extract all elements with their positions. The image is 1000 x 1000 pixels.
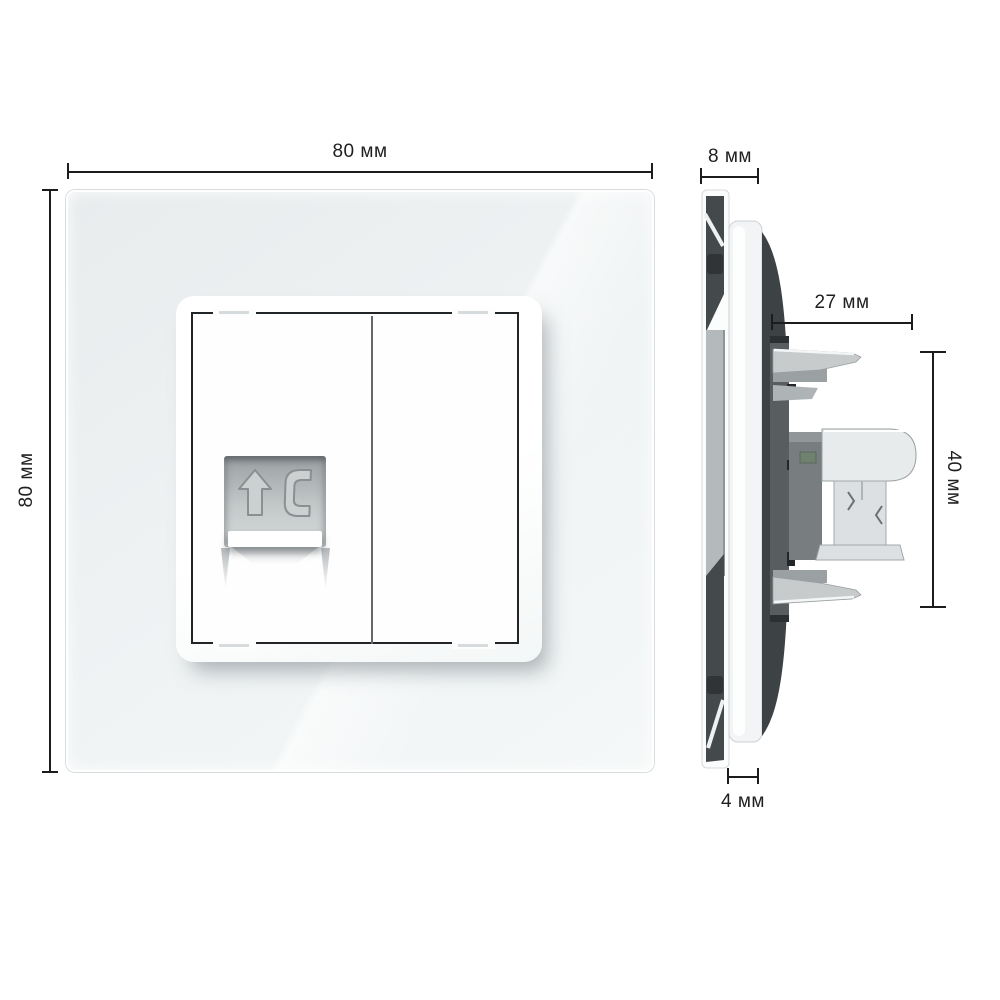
dim-tick — [727, 768, 729, 784]
dim-tick — [757, 168, 759, 184]
dim-line — [772, 322, 912, 324]
phone-handset-icon — [282, 469, 313, 517]
frame-notch — [213, 309, 256, 317]
module-frame — [191, 312, 519, 644]
rj11-recess — [224, 456, 326, 547]
dim-tick — [42, 189, 58, 191]
dim-tick — [911, 314, 913, 330]
side-plate — [729, 221, 762, 742]
dim-line — [728, 776, 758, 778]
side-glass-edge — [702, 190, 729, 768]
clip-mark — [219, 644, 249, 647]
rj11-clip-bar — [228, 531, 322, 547]
dim-tick — [757, 768, 759, 784]
clip-mark — [219, 311, 249, 314]
dim-label-front-width: 80 мм — [300, 141, 420, 163]
dim-label-plate-thickness: 4 мм — [683, 791, 803, 813]
arrow-up-icon — [238, 469, 272, 517]
side-bottom-claw — [773, 570, 861, 604]
dim-label-mech-depth: 27 мм — [782, 292, 902, 314]
dim-label-mech-height: 40 мм — [942, 418, 964, 538]
product-dimension-diagram: 80 мм 80 мм — [0, 0, 1000, 1000]
dim-label-side-thickness: 8 мм — [670, 146, 790, 168]
dim-tick — [771, 314, 773, 330]
dim-line — [68, 171, 652, 173]
frame-notch — [452, 309, 495, 317]
recess-shadow-right — [321, 548, 330, 590]
clip-mark — [458, 311, 488, 314]
dim-line — [701, 176, 758, 178]
dim-tick — [651, 163, 653, 179]
dim-line — [932, 352, 934, 607]
frame-notch — [452, 641, 495, 649]
recess-shadow-left — [221, 548, 230, 590]
recess-shadow — [228, 547, 322, 565]
dim-tick — [67, 163, 69, 179]
module-divider — [371, 316, 373, 644]
dim-tick — [920, 351, 946, 353]
frame-notch — [213, 641, 256, 649]
clip-mark — [458, 644, 488, 647]
side-connector — [789, 429, 916, 560]
side-top-claw — [773, 349, 861, 401]
dim-tick — [700, 168, 702, 184]
dim-tick — [42, 771, 58, 773]
socket-module — [176, 296, 542, 662]
dim-label-front-height: 80 мм — [16, 420, 38, 540]
dim-tick — [920, 606, 946, 608]
dim-line — [49, 190, 51, 772]
